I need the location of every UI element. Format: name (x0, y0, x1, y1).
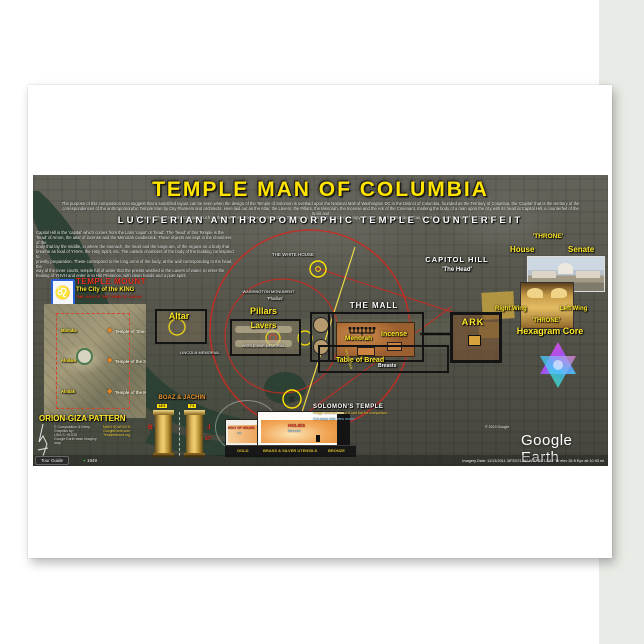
pillar-measure-tag: 7'3 (187, 403, 197, 409)
solomons-temple-sub1: Image knocked down & laid flat for compa… (313, 412, 388, 416)
diamond-marker: ◆ (107, 327, 112, 334)
breasts-label: Breasts (378, 364, 396, 369)
dome-of-rock-shape (76, 348, 93, 365)
imagery-year: 1949 (87, 458, 97, 463)
star-label-alnitak: Alnitak (61, 390, 75, 394)
holy-of-holies-sub: Ark (237, 432, 242, 435)
gold-label: GOLD (237, 449, 249, 453)
temple-porch: HOLY OF HOLIES Ark (225, 419, 261, 447)
temple-label-sun: Temple of the Sun (115, 360, 146, 364)
cherub-wing-shape (527, 288, 543, 298)
temple-mount-tagline: THE LION OF THE TRIBE OF JUDAH (76, 295, 142, 299)
jefferson-marker-dot (289, 396, 295, 402)
pillars-label: Pillars (230, 307, 297, 316)
incense-label: Incense (381, 331, 407, 338)
jachin-pillar (186, 410, 203, 457)
ark-box: ARK (450, 312, 502, 363)
capitol-head-label: 'The Head' (421, 267, 493, 273)
historical-imagery-chip[interactable]: ● 1949 (83, 458, 97, 463)
solomons-temple-sub2: Cut-away side view model (313, 418, 355, 422)
lavers-label: Lavers (232, 322, 295, 330)
diamond-marker: ◆ (107, 388, 112, 395)
altar-box: Altar (155, 309, 207, 344)
google-copyright: © 2013 Google (485, 426, 509, 430)
phallus-label: 'Phallus' (245, 297, 305, 302)
menorah-label: Menorah (345, 336, 372, 343)
pillar-height-label: 27' (205, 437, 212, 442)
house-label: House (510, 246, 534, 254)
jachin-letter: J (207, 425, 211, 432)
throne-bottom-label: 'THRONE' (511, 318, 581, 324)
altar-label: Altar (157, 312, 201, 321)
measure-line (179, 412, 180, 456)
satellite-map: TEMPLE MAN OF COLUMBIA The purpose of th… (33, 175, 608, 466)
poster-title: TEMPLE MAN OF COLUMBIA (33, 179, 608, 201)
temple-mount-photo: Mintaka Alnilam Alnitak ◆ ◆ ◆ Temple of … (44, 304, 146, 418)
star-label-alnilam: Alnilam (61, 359, 76, 363)
boaz-jachin-group: BOAZ & JACHIN 18'3 7'3 B J 27' (150, 395, 214, 461)
reflecting-pool-box: Lavers WORLD WAR MEMORIAL (230, 319, 301, 356)
tour-guide-button[interactable]: Tour Guide (35, 456, 69, 465)
capitol-hill-paragraph: Capitol Hill is the 'capital' which come… (36, 231, 234, 279)
wheel-circle (313, 317, 329, 333)
source-line: TempleMount.org (103, 433, 145, 437)
altar-glyph (316, 435, 320, 442)
holies-sub: Menorah (288, 430, 301, 433)
temple-mount-title: TEMPLE MOUNT (76, 278, 146, 286)
capitol-hill-label: CAPITOL HILL (421, 256, 493, 264)
washington-monument-label: WASHINGTON MONUMENT (231, 290, 306, 294)
the-mall-label: THE MALL (328, 302, 420, 310)
white-house-marker (310, 261, 326, 277)
capitol-dome-shape (558, 263, 573, 274)
hexagram-core-label: Hexagram Core (495, 327, 605, 336)
temple-mount-subtitle: The City of the KING (76, 287, 134, 293)
ww-memorial-label: WORLD WAR MEMORIAL (232, 345, 295, 349)
white-house-marker-dot (316, 267, 321, 272)
boaz-pillar (155, 410, 172, 457)
white-house-label: THE WHITE HOUSE (258, 253, 328, 258)
signature-icon (35, 422, 51, 458)
bronze-label: BRONZE (328, 449, 345, 453)
ark-gold-square (468, 335, 481, 346)
tidal-basin (264, 372, 306, 404)
credit-line: Google Earth base imagery map (54, 437, 100, 445)
holy-of-holies-label: HOLY OF HOLIES (228, 427, 255, 430)
clock-icon: ● (83, 458, 86, 463)
temple-label-moon: Temple of the Moon (115, 391, 146, 395)
utensils-label: BRASS & SILVER UTENSILS (263, 449, 317, 453)
credits-block: © Composition & Interp Graphics by: LISA… (54, 425, 100, 445)
lion-glyph: ♌ (55, 285, 71, 300)
temple-label-shining-one: Temple of 'Shining One' (115, 330, 146, 334)
left-wing-label: Left Wing (560, 306, 587, 312)
boaz-jachin-title: BOAZ & JACHIN (150, 395, 214, 401)
poster-subtitle: LUCIFERIAN ANTHROPOMORPHIC TEMPLE COUNTE… (33, 216, 608, 226)
solomons-temple-title: SOLOMON'S TEMPLE (313, 404, 383, 410)
star-label-mintaka: Mintaka (61, 329, 77, 333)
pillar-measure-tag: 18'3 (156, 403, 168, 409)
capitol-wing-shape (532, 271, 556, 278)
credit-line: © Composition & Interp Graphics by: (54, 425, 100, 433)
orion-giza-pattern-label: ORION-GIZA PATTERN (39, 415, 126, 423)
diamond-marker: ◆ (107, 357, 112, 364)
boaz-letter: B (148, 425, 153, 432)
sources-block: MAIN SOURCES: GoogleEarth.com TempleMoun… (103, 425, 145, 437)
throne-top-label: 'THRONE' (515, 234, 581, 241)
lower-mall-box: Table of Bread Breasts (318, 345, 449, 373)
status-readout: Imagery Date: 11/13/2011 38°53'21.91" N … (462, 459, 604, 463)
capitol-wing-shape (576, 271, 600, 278)
ark-label: ARK (453, 318, 493, 327)
table-of-bread-label: Table of Bread (336, 357, 384, 364)
poster-product-image[interactable]: TEMPLE MAN OF COLUMBIA The purpose of th… (28, 85, 612, 558)
merkaba-icon (536, 340, 580, 390)
cherub-wing-shape (551, 288, 567, 298)
lincoln-memorial-label: LINCOLN MEMORIAL (180, 351, 220, 355)
right-wing-label: Right Wing (495, 306, 527, 312)
senate-label: Senate (568, 246, 594, 254)
